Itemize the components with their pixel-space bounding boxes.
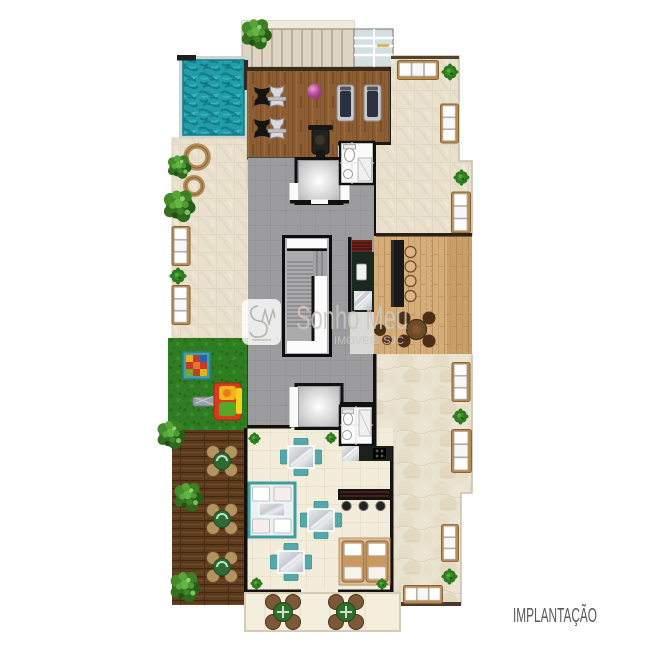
svg-text:IMÓVEIS SJC: IMÓVEIS SJC — [334, 334, 404, 347]
svg-text:Sonho Meu: Sonho Meu — [296, 299, 408, 336]
svg-text:IMPLANTAÇÃO: IMPLANTAÇÃO — [513, 603, 597, 627]
